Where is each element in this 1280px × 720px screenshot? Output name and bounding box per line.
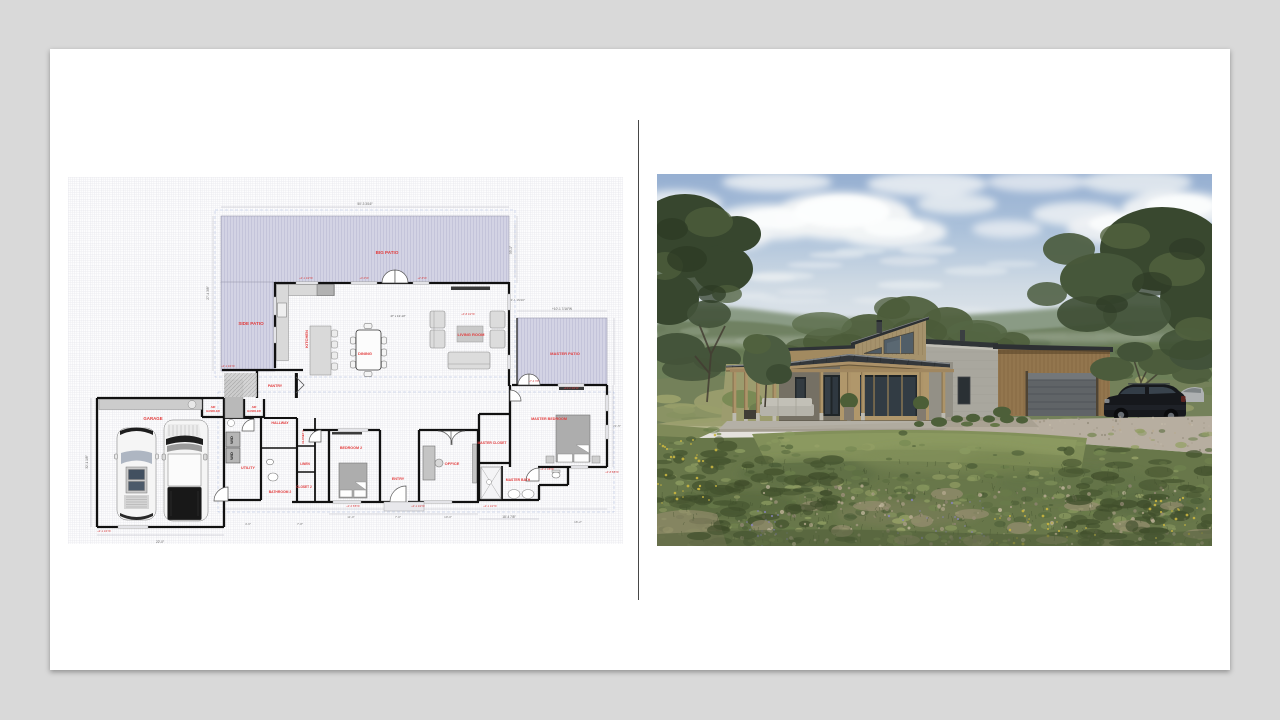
svg-text:KITCHEN: KITCHEN [304, 330, 309, 348]
svg-text:MASTER PATIO: MASTER PATIO [550, 351, 580, 356]
svg-text:LIVING ROOM: LIVING ROOM [458, 332, 486, 337]
svg-text:27′-4 3/8″: 27′-4 3/8″ [206, 285, 210, 299]
svg-text:OFFICE: OFFICE [445, 461, 460, 466]
svg-text:+2′-1 1/2″W: +2′-1 1/2″W [411, 504, 425, 508]
svg-text:+4′-0″W: +4′-0″W [359, 276, 369, 280]
svg-text:BATHROOM 2: BATHROOM 2 [269, 490, 292, 494]
svg-text:BIG PATIO: BIG PATIO [376, 250, 399, 255]
svg-text:+2′-6″W: +2′-6″W [417, 276, 427, 280]
svg-text:UTILITY: UTILITY [241, 466, 255, 470]
svg-text:+2′-1 1/2″W: +2′-1 1/2″W [299, 276, 313, 280]
svg-text:4′-6″: 4′-6″ [245, 522, 251, 526]
svg-text:+2′-1 1/4″W: +2′-1 1/4″W [221, 364, 235, 368]
svg-text:HANDLER: HANDLER [247, 409, 261, 413]
svg-text:47′ x 13′-10″: 47′ x 13′-10″ [390, 314, 405, 318]
svg-text:50′-3 3/16″: 50′-3 3/16″ [357, 202, 373, 206]
svg-text:PANTRY: PANTRY [268, 384, 283, 388]
svg-text:BEDROOM 2: BEDROOM 2 [340, 446, 362, 450]
svg-text:GARAGE: GARAGE [143, 416, 162, 421]
svg-text:18′-4 7/8″: 18′-4 7/8″ [502, 515, 516, 519]
svg-text:W/D: W/D [229, 452, 234, 460]
svg-text:HANDLER: HANDLER [206, 409, 220, 413]
svg-text:SIDE PATIO: SIDE PATIO [238, 321, 264, 326]
svg-text:+4′-2 1/8″W: +4′-2 1/8″W [540, 467, 554, 471]
svg-text:MASTER BEDROOM: MASTER BEDROOM [531, 417, 567, 421]
svg-text:+2′-1 1/4″W: +2′-1 1/4″W [97, 529, 111, 533]
svg-text:33′-1 15/16″: 33′-1 15/16″ [509, 298, 525, 302]
svg-text:LINEN: LINEN [300, 462, 310, 466]
svg-text:+10′-1 7/16″W: +10′-1 7/16″W [552, 307, 572, 311]
svg-text:21′-5″: 21′-5″ [613, 424, 621, 428]
svg-text:22′-0″: 22′-0″ [156, 540, 165, 544]
svg-text:+2′-6 5/8″W: +2′-6 5/8″W [346, 504, 360, 508]
svg-text:+2′-1 1/2″W: +2′-1 1/2″W [483, 504, 497, 508]
svg-text:CLOSET 2: CLOSET 2 [296, 485, 312, 489]
svg-text:32′-1 1/8″: 32′-1 1/8″ [85, 454, 89, 468]
svg-text:+13′-2 3/4″W: +13′-2 3/4″W [564, 386, 579, 390]
svg-text:11′-0″: 11′-0″ [347, 515, 354, 519]
svg-text:CLOSET 1: CLOSET 1 [301, 430, 305, 444]
svg-text:33′-1″: 33′-1″ [509, 245, 513, 254]
svg-text:10′-0″: 10′-0″ [444, 515, 452, 519]
svg-text:MASTER CLOSET: MASTER CLOSET [477, 441, 507, 445]
svg-text:7′-0″: 7′-0″ [395, 515, 401, 519]
svg-text:W/D: W/D [229, 436, 234, 444]
svg-text:ENTRY: ENTRY [392, 477, 405, 481]
svg-text:7′-8″: 7′-8″ [297, 522, 303, 526]
svg-text:DINING: DINING [358, 351, 372, 356]
svg-text:+7′-4 7/8″: +7′-4 7/8″ [529, 379, 540, 383]
svg-text:16′-2″: 16′-2″ [574, 520, 582, 524]
svg-text:+4′-8 1/2″W: +4′-8 1/2″W [461, 312, 475, 316]
svg-text:+2′-8 5/8″W: +2′-8 5/8″W [605, 470, 619, 474]
svg-text:MASTER BATH: MASTER BATH [506, 478, 531, 482]
svg-text:HALLWAY: HALLWAY [271, 421, 289, 425]
